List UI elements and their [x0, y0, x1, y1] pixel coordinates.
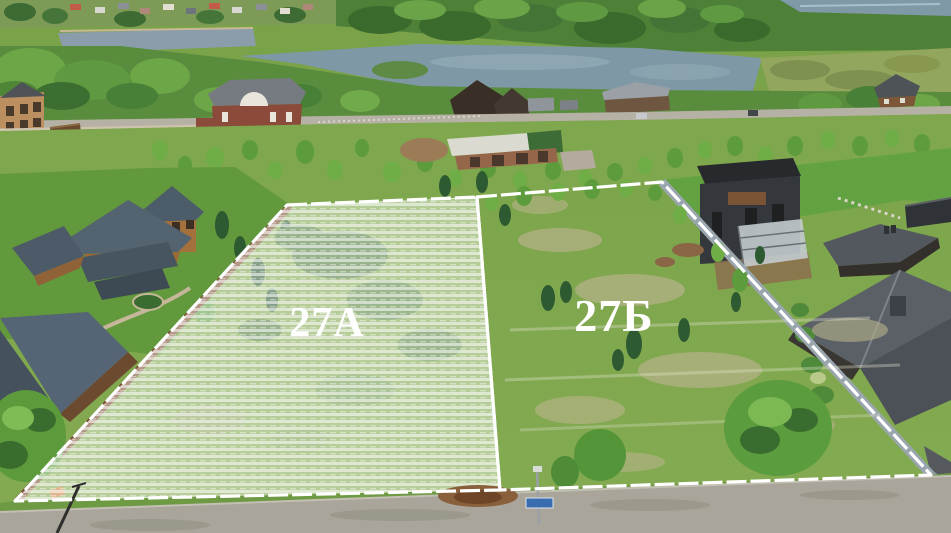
gray-car [636, 113, 647, 119]
dirt-patch [672, 243, 704, 257]
distant-village [0, 0, 340, 28]
aerial-photo: 27А 27Б [0, 0, 951, 533]
blue-sign [526, 498, 553, 508]
plot-27a-label: 27А [289, 300, 364, 346]
small-gray-roof-house [528, 98, 554, 112]
dark-car [748, 110, 758, 116]
plot-27b-label: 27Б [574, 290, 653, 341]
